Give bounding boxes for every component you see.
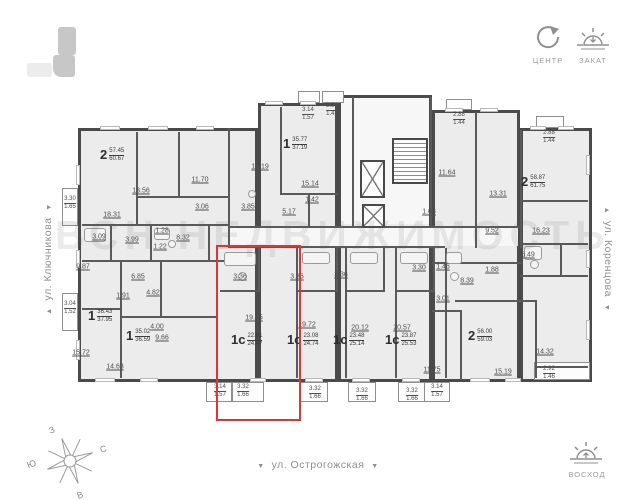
room-area-label: 1.42 xyxy=(305,197,319,204)
street-label-bottom: ▼ ул. Острогожская ▼ xyxy=(238,459,398,471)
room-area-label: 15.14 xyxy=(301,181,319,188)
wall-segment xyxy=(433,248,435,290)
balcony-size: 2.88 xyxy=(543,130,555,138)
wall-segment xyxy=(455,300,535,302)
bathroom-fixture xyxy=(446,252,462,264)
balcony-half-size: 1.66 xyxy=(309,394,321,401)
balcony-area-label: 3.041.52 xyxy=(64,301,76,316)
room-area-label: 6.49 xyxy=(521,252,535,259)
elevator-shaft xyxy=(362,204,385,228)
balcony-size: 2.92 xyxy=(543,366,555,374)
apartment-total-area: 25.53 xyxy=(401,341,416,347)
window xyxy=(148,126,168,130)
room-area-label: 3.30 xyxy=(412,265,426,272)
wall-segment xyxy=(397,290,435,292)
balcony-size: 3.32 xyxy=(356,388,368,396)
balcony-size: 2.84 xyxy=(326,103,338,111)
bathroom-fixture xyxy=(350,252,378,264)
wall-segment xyxy=(110,224,112,262)
window xyxy=(470,378,490,382)
room-area-label: 14.63 xyxy=(106,364,124,371)
apartment-type: 2 xyxy=(521,175,528,188)
apartment-type: 1с xyxy=(333,333,347,346)
apartment-living-area: 23.08 xyxy=(303,333,318,341)
apartment-type: 1 xyxy=(126,329,133,342)
balcony-size: 3.30 xyxy=(64,196,76,204)
balcony-size: 2.88 xyxy=(453,112,465,120)
sunset-icon xyxy=(575,24,611,57)
wall-segment xyxy=(475,112,477,248)
balcony-size: 3.14 xyxy=(431,384,443,392)
selected-apartment-outline[interactable] xyxy=(216,245,301,421)
apartment-total-area: 61.75 xyxy=(530,183,545,189)
balcony-half-size: 1.65 xyxy=(64,204,76,211)
balcony-size: 3.14 xyxy=(302,107,314,115)
balcony-size: 3.32 xyxy=(406,388,418,396)
street-arrow: ▼ xyxy=(46,203,53,210)
minimap-building-section[interactable] xyxy=(58,27,76,55)
balcony-half-size: 1.52 xyxy=(64,309,76,316)
apartment-total-area: 60.67 xyxy=(109,156,124,162)
balcony-half-size: 1.57 xyxy=(431,392,443,399)
room-area-label: 1.88 xyxy=(485,267,499,274)
window xyxy=(100,126,120,130)
wall-segment xyxy=(82,224,228,226)
bathroom-fixture xyxy=(302,252,330,264)
wall-segment xyxy=(345,248,347,378)
apartment-living-area: 35.77 xyxy=(292,137,307,145)
apartment-living-area: 57.45 xyxy=(109,148,124,156)
room-area-label: 11.75 xyxy=(424,367,441,374)
room-area-label: 13.31 xyxy=(489,191,507,198)
balcony-area-label: 3.321.66 xyxy=(406,388,418,403)
room-area-label: 15.19 xyxy=(494,369,512,376)
room-area-label: 16.23 xyxy=(532,228,550,235)
room-area-label: 1.28 xyxy=(155,228,169,235)
balcony-size: 3.04 xyxy=(64,301,76,309)
room-area-label: 4.82 xyxy=(146,290,160,297)
wall-segment xyxy=(522,200,588,202)
apartment-label[interactable]: 135.7737.19 xyxy=(283,137,307,152)
balcony-size: 3.32 xyxy=(309,386,321,394)
wall-segment xyxy=(82,260,228,262)
street-arrow: ▼ xyxy=(257,463,264,470)
window xyxy=(558,126,574,130)
wall-segment xyxy=(228,128,230,248)
room-area-label: 9.52 xyxy=(485,228,499,235)
wall-segment xyxy=(395,248,397,378)
apartment-total-area: 37.95 xyxy=(97,317,112,323)
balcony-half-size: 1.57 xyxy=(302,115,314,122)
window xyxy=(305,378,323,382)
toilet-fixture xyxy=(248,190,256,198)
apartment-label[interactable]: 1с23.4825.14 xyxy=(333,333,364,348)
apartment-living-area: 35.02 xyxy=(135,329,150,337)
room-area-label: 9.66 xyxy=(155,335,169,342)
room-area-label: 20.57 xyxy=(393,325,411,332)
room-area-label: 10.19 xyxy=(251,164,269,171)
street-arrow: ▼ xyxy=(371,463,378,470)
apartment-living-area: 56.00 xyxy=(477,329,492,337)
window xyxy=(480,108,498,112)
wall-segment xyxy=(150,226,152,262)
window xyxy=(402,378,420,382)
toilet-fixture xyxy=(530,260,539,269)
window xyxy=(586,155,590,175)
balcony-half-size: 1.44 xyxy=(543,138,555,145)
window xyxy=(76,165,80,185)
apartment-total-area: 24.74 xyxy=(303,341,318,347)
window xyxy=(265,101,283,105)
wall-segment xyxy=(160,262,162,318)
apartment-label[interactable]: 257.4560.67 xyxy=(100,148,124,163)
apartment-type: 2 xyxy=(468,329,475,342)
sunset-label: ЗАКАТ xyxy=(575,56,611,65)
wall-segment xyxy=(520,275,588,277)
street-label-right: ▲ ул. Коренцова ▼ xyxy=(602,179,614,339)
apartment-living-area: 58.87 xyxy=(530,175,545,183)
room-area-label: 9.87 xyxy=(76,264,90,271)
balcony-area-label: 3.301.65 xyxy=(64,196,76,211)
wall-segment xyxy=(522,243,588,245)
room-area-label: 4.00 xyxy=(150,324,164,331)
balcony-area-label: 3.321.66 xyxy=(309,386,321,401)
room-area-label: 8.39 xyxy=(460,278,474,285)
street-arrow: ▲ xyxy=(603,207,610,214)
apartment-type: 1 xyxy=(283,137,290,150)
wall-segment xyxy=(432,310,460,312)
balcony-area-label: 2.881.44 xyxy=(543,130,555,145)
wall-segment xyxy=(336,248,338,290)
staircase xyxy=(392,138,428,184)
compass-north-letter: С xyxy=(99,443,108,454)
room-area-label: 1.22 xyxy=(153,244,167,251)
apartment-living-area: 36.43 xyxy=(97,309,112,317)
window xyxy=(196,126,214,130)
room-area-label: 18.31 xyxy=(103,212,121,219)
wall-segment xyxy=(560,245,562,275)
window xyxy=(300,101,316,105)
sunrise-label: ВОСХОД xyxy=(566,470,608,479)
wall-segment xyxy=(383,248,385,290)
room-area-label: 3.99 xyxy=(125,237,139,244)
window xyxy=(95,378,115,382)
minimap-building-wing[interactable] xyxy=(27,63,52,77)
apartment-type: 1с xyxy=(385,333,399,346)
sunrise-icon xyxy=(568,440,604,473)
apartment-type: 1 xyxy=(88,309,95,322)
room-area-label: 11.70 xyxy=(192,177,209,184)
balcony xyxy=(322,91,344,103)
room-area-label: 1.91 xyxy=(116,293,130,300)
apartment-total-area: 37.19 xyxy=(292,145,307,151)
wall-segment xyxy=(460,310,462,380)
room-area-label: 15.72 xyxy=(72,350,90,357)
window xyxy=(586,320,590,340)
minimap-building-corner[interactable] xyxy=(53,55,75,77)
balcony-half-size: 1.46 xyxy=(543,374,555,381)
wall-segment xyxy=(120,316,218,318)
wall-segment xyxy=(347,290,385,292)
room-area-label: 6.85 xyxy=(131,274,145,281)
room-area-label: 20.12 xyxy=(351,325,369,332)
balcony-area-label: 3.141.57 xyxy=(431,384,443,399)
room-area-label: 3.06 xyxy=(195,204,209,211)
balcony-half-size: 1.42 xyxy=(326,111,338,118)
balcony-half-size: 1.66 xyxy=(406,396,418,403)
room-area-label: 3.09 xyxy=(92,234,106,241)
apartment-total-area: 25.14 xyxy=(349,341,364,347)
toilet-fixture xyxy=(450,272,459,281)
wall-segment xyxy=(136,132,138,226)
wall-segment xyxy=(208,226,210,262)
wall-segment xyxy=(178,132,180,198)
center-direction-label: ЦЕНТР xyxy=(528,56,568,65)
street-arrow: ▲ xyxy=(46,307,53,314)
wall-segment xyxy=(352,97,354,228)
balcony-half-size: 1.44 xyxy=(453,120,465,127)
floorplan-viewer: ЦЕНТР ЗАКАТ ВОСХОД xyxy=(0,0,627,500)
room-area-label: 1.46 xyxy=(436,264,450,271)
room-area-label: 11.64 xyxy=(439,170,456,177)
apartment-label[interactable]: 258.8761.75 xyxy=(521,175,545,190)
window xyxy=(352,378,370,382)
room-area-label: 3.36 xyxy=(334,272,348,279)
wall-segment xyxy=(120,262,122,378)
room-area-label: 5.17 xyxy=(282,209,296,216)
street-label-left: ▲ ул. Ключникова ▼ xyxy=(42,179,54,339)
apartment-living-area: 23.48 xyxy=(349,333,364,341)
room-area-label: 14.32 xyxy=(536,349,554,356)
room-area-label: 1.68 xyxy=(422,209,436,216)
balcony-area-label: 3.321.66 xyxy=(356,388,368,403)
apartment-label[interactable]: 136.4337.95 xyxy=(88,309,112,324)
toilet-fixture xyxy=(168,240,176,248)
apartment-type: 2 xyxy=(100,148,107,161)
street-arrow: ▼ xyxy=(603,304,610,311)
room-area-label: 3.01 xyxy=(436,296,450,303)
apartment-total-area: 36.59 xyxy=(135,337,150,343)
window xyxy=(140,378,158,382)
room-area-label: 8.32 xyxy=(176,235,190,242)
window xyxy=(505,378,521,382)
window xyxy=(586,250,590,268)
apartment-label[interactable]: 135.0236.59 xyxy=(126,329,150,344)
center-direction-icon xyxy=(533,22,563,57)
apartment-label[interactable]: 1с23.8725.53 xyxy=(385,333,416,348)
balcony-area-label: 2.881.44 xyxy=(453,112,465,127)
elevator-shaft xyxy=(360,160,385,198)
wall-segment xyxy=(136,196,230,198)
wall-segment xyxy=(280,107,282,195)
apartment-total-area: 59.03 xyxy=(477,337,492,343)
compass-rose-icon xyxy=(42,433,98,494)
balcony-area-label: 2.841.42 xyxy=(326,103,338,118)
apartment-living-area: 23.87 xyxy=(401,333,416,341)
apartment-label[interactable]: 256.0059.03 xyxy=(468,329,492,344)
wall-segment xyxy=(298,290,338,292)
room-area-label: 13.56 xyxy=(132,188,150,195)
compass-south-letter: Ю xyxy=(26,458,38,471)
balcony-half-size: 1.66 xyxy=(356,396,368,403)
balcony-area-label: 3.141.57 xyxy=(302,107,314,122)
room-area-label: 3.85 xyxy=(241,204,255,211)
bathroom-fixture xyxy=(400,252,428,264)
balcony-area-label: 2.921.46 xyxy=(543,366,555,381)
